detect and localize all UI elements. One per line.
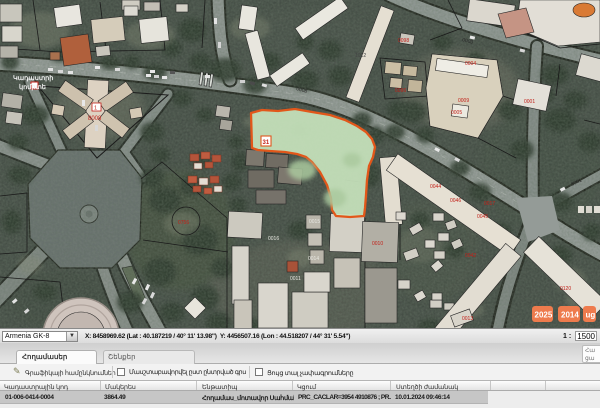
svg-text:0011: 0011 bbox=[290, 276, 301, 282]
svg-text:0016: 0016 bbox=[268, 236, 279, 242]
svg-text:0098: 0098 bbox=[398, 38, 409, 44]
svg-text:2014: 2014 bbox=[561, 311, 579, 320]
svg-text:0756: 0756 bbox=[178, 220, 189, 226]
svg-text:1: 1 bbox=[94, 106, 97, 112]
svg-text:կոմիտե: կոմիտե bbox=[19, 83, 46, 91]
svg-text:0009: 0009 bbox=[458, 98, 469, 104]
svg-text:0017: 0017 bbox=[484, 201, 495, 207]
svg-text:8008: 8008 bbox=[88, 116, 102, 122]
svg-text:31: 31 bbox=[263, 140, 270, 146]
svg-text:0014: 0014 bbox=[308, 256, 319, 262]
svg-text:0010: 0010 bbox=[372, 241, 383, 247]
svg-text:0044: 0044 bbox=[430, 184, 441, 190]
svg-text:ug: ug bbox=[586, 311, 596, 320]
svg-text:0004: 0004 bbox=[465, 61, 476, 67]
svg-text:0001: 0001 bbox=[524, 99, 535, 105]
svg-text:1012: 1012 bbox=[355, 53, 366, 59]
svg-text:2025: 2025 bbox=[535, 311, 553, 320]
svg-text:0046: 0046 bbox=[450, 198, 461, 204]
svg-text:Կադաստրի: Կադաստրի bbox=[13, 74, 53, 82]
svg-text:0096: 0096 bbox=[395, 88, 406, 94]
svg-text:0120: 0120 bbox=[560, 286, 571, 292]
svg-text:0042: 0042 bbox=[465, 253, 476, 259]
svg-text:0015: 0015 bbox=[309, 219, 320, 225]
svg-text:0045: 0045 bbox=[477, 214, 488, 220]
svg-text:0005: 0005 bbox=[451, 110, 462, 116]
svg-text:0013: 0013 bbox=[462, 316, 473, 322]
